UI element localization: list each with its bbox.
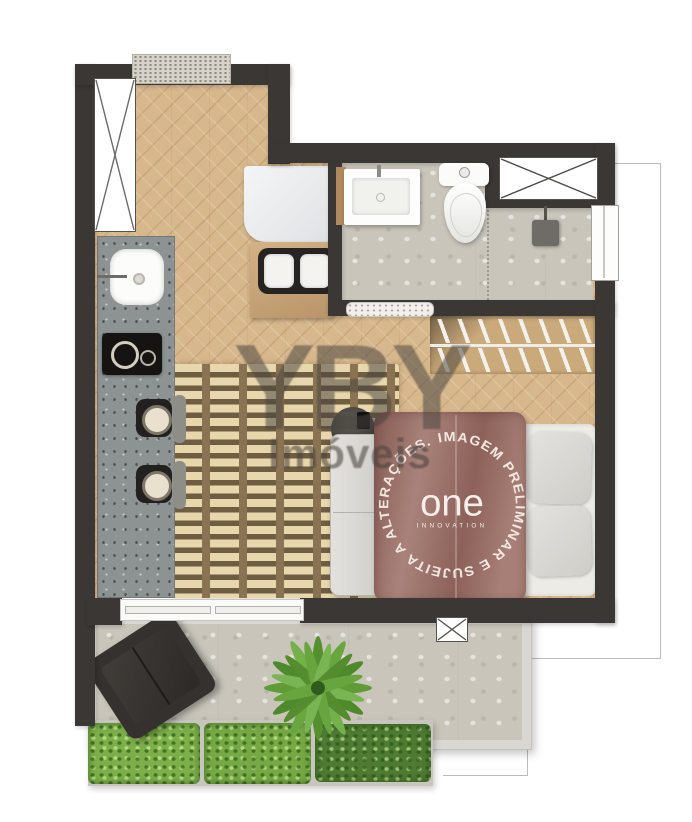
dining-chair-seat-1 [264,254,294,288]
side-window-mullion [603,206,605,278]
balcony-grout-3 [458,625,459,739]
bed-print: IMAGEM PRELIMINAR E SUJEITA A ALTERAÇÕES… [367,420,537,590]
utility-shaft [94,78,136,232]
burner-large [111,341,139,369]
one-logo-sub: INNOVATION [417,522,488,529]
column-marker-x-icon [437,618,467,641]
bathroom-vanity [344,169,420,225]
wall-balcony-stub [87,598,122,625]
bar-stool-1 [136,399,172,437]
wall-left [75,64,95,726]
bar-stool-back-2 [173,461,186,509]
stool-seat-2 [142,471,172,501]
floorplan-canvas: IMAGEM PRELIMINAR E SUJEITA A ALTERAÇÕES… [0,0,692,822]
dining-chair-seat-2 [300,254,330,288]
one-logo: one [420,482,484,525]
shower-head [532,220,559,246]
closet-shelf-line [430,344,595,347]
lot-outline-right [660,163,661,658]
stool-seat-1 [142,405,172,435]
kitchen-faucet [97,275,127,278]
bathroom-window [499,157,598,200]
lot-outline-top [613,163,660,164]
toilet-seat-line [450,193,482,237]
side-window [591,205,619,281]
lot-outline-step [527,658,661,659]
toilet-flush-button [459,167,470,178]
vanity-faucet [377,165,381,177]
door-panel-1 [125,606,211,614]
bar-stool-2 [136,465,172,503]
burner-small [140,350,156,366]
bar-stool-back-1 [173,395,186,443]
closet-hanger-unit [430,316,595,374]
door-panel-2 [215,606,301,614]
white-cabinet [244,166,330,242]
hanger-rail-top [430,319,595,343]
sink-drain [133,273,145,285]
entry-doormat [132,54,231,84]
balcony-sliding-door [120,599,304,621]
shaft-x-icon [95,79,135,231]
hanger-rail-bottom [430,348,595,372]
vanity-drain [376,193,385,202]
lot-outline-bottom [443,775,528,776]
exterior-white [288,0,692,144]
palm-plant [260,630,376,746]
bathroom-door-track [346,302,434,317]
column-marker [436,617,468,642]
window-x-icon [500,158,597,199]
